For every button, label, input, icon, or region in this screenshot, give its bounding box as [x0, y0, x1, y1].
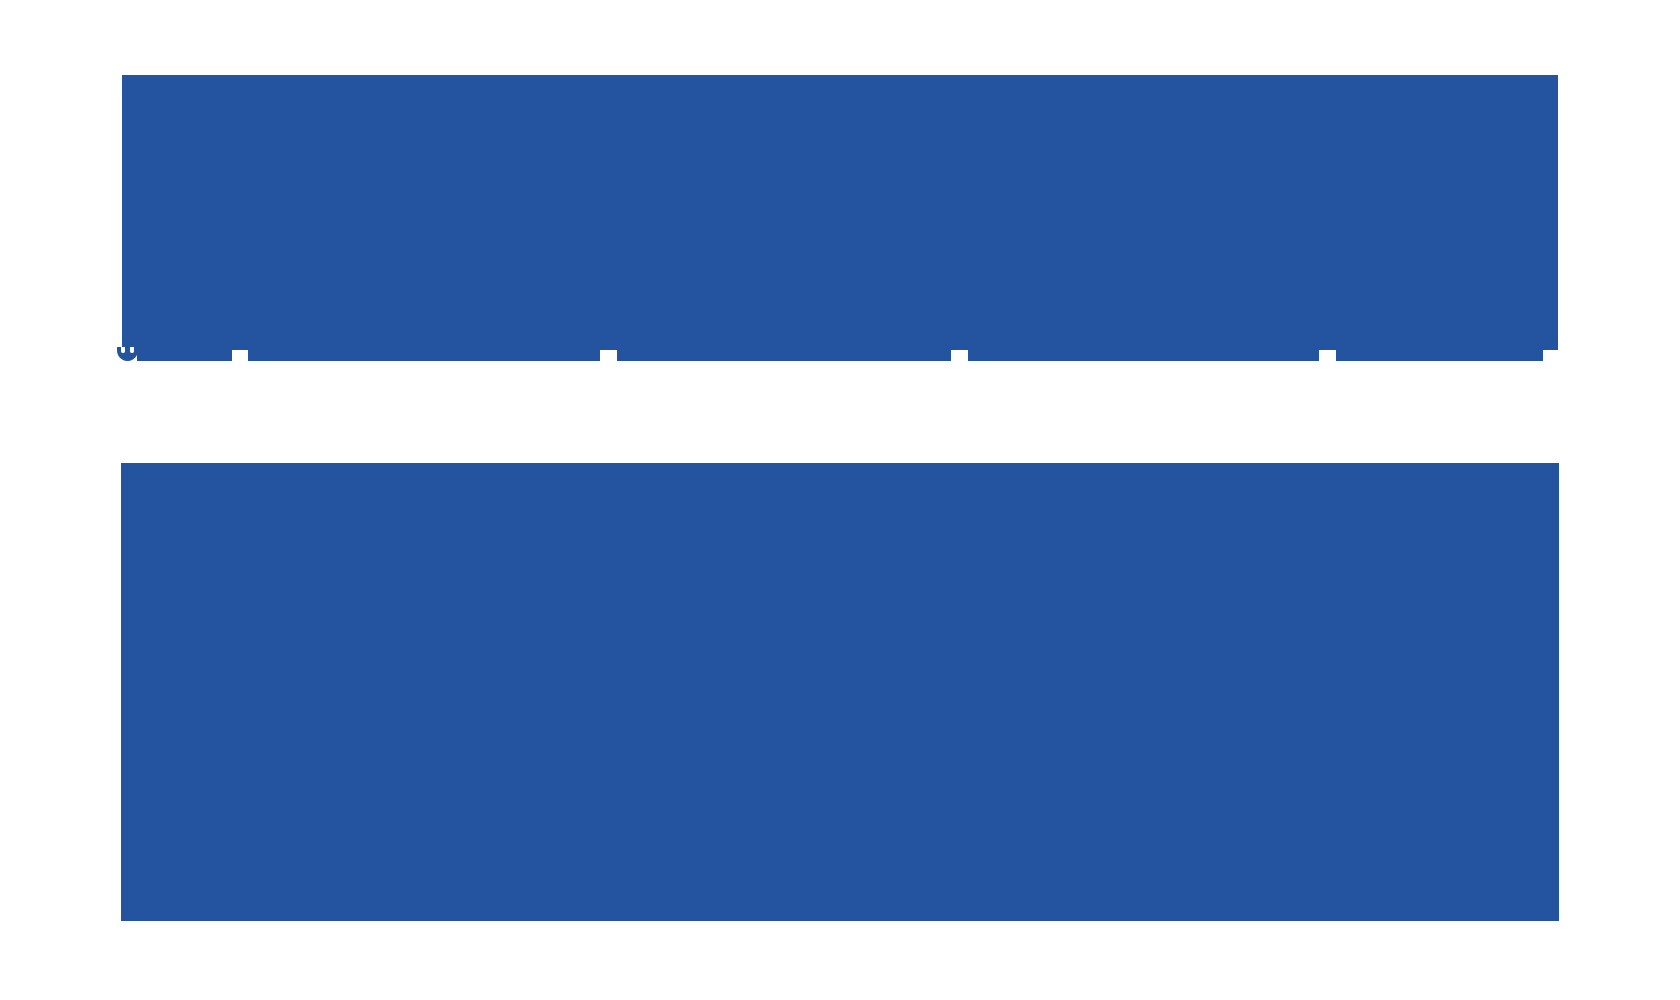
redaction-block-top — [122, 75, 1558, 350]
glyph-notch — [130, 347, 134, 353]
redacted-strip-segment — [968, 349, 1319, 361]
redacted-strip-segment — [1336, 349, 1543, 361]
clipped-smiley-icon — [117, 347, 138, 361]
redacted-strip-segment — [248, 349, 600, 361]
glyph-notch — [121, 347, 125, 353]
redacted-strip-segment — [137, 349, 232, 361]
page-canvas — [0, 0, 1680, 1000]
redacted-strip-segment — [617, 349, 951, 361]
redaction-block-bottom — [121, 463, 1559, 921]
